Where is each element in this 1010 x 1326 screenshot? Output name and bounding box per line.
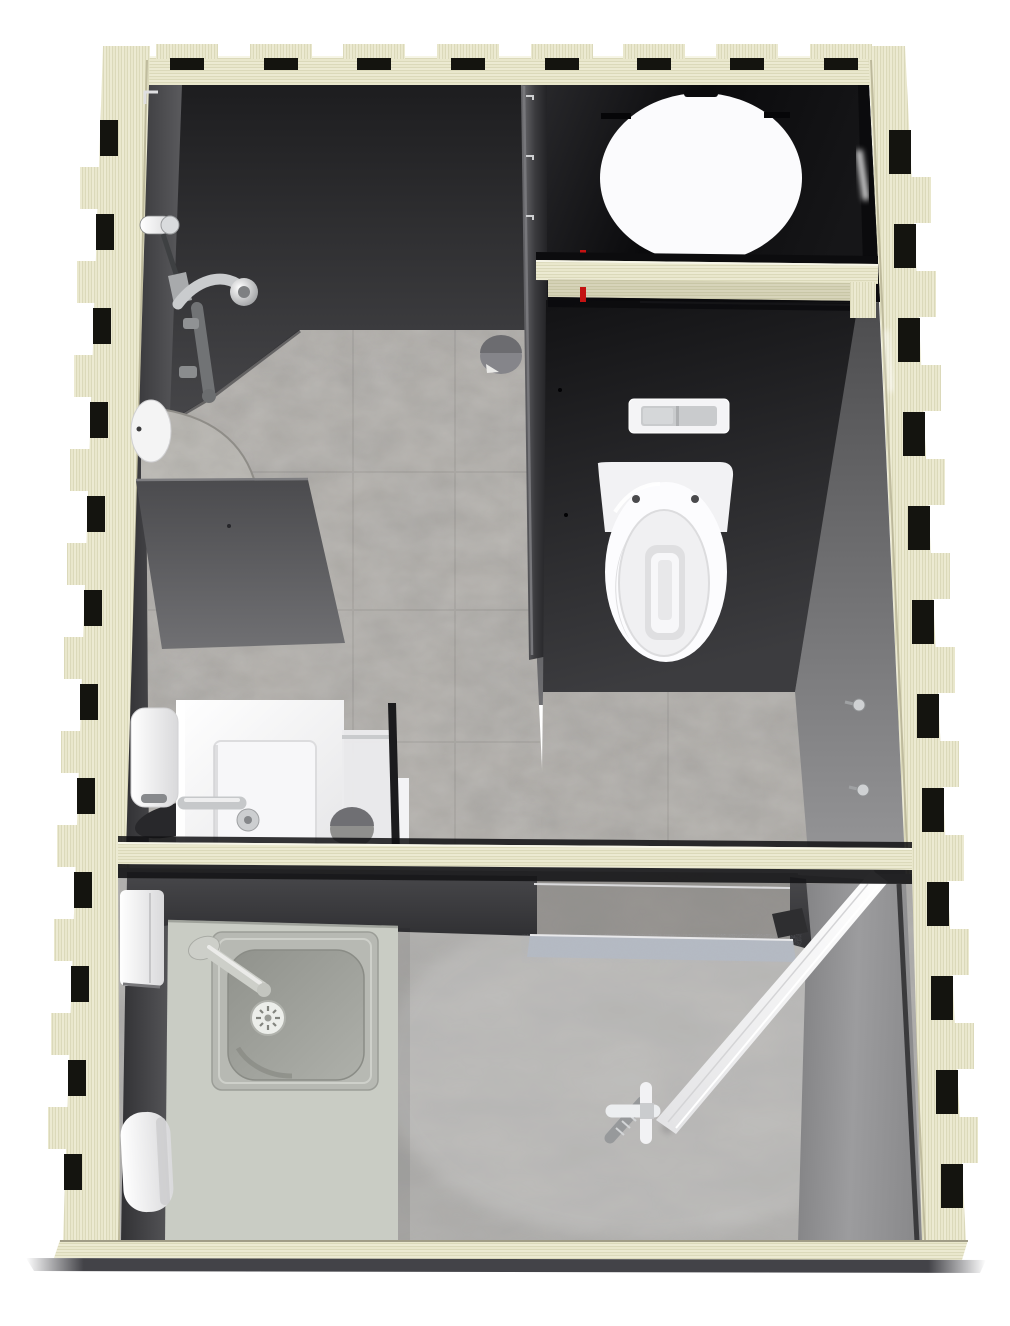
water-heater-cylinder	[119, 1111, 174, 1213]
riser-foot	[202, 389, 216, 403]
seat-hinge-left	[632, 495, 640, 503]
sink-drain	[251, 1001, 285, 1035]
water-heater-box	[120, 890, 164, 986]
toilet-room	[535, 85, 906, 884]
bathroom-module-render	[0, 0, 1010, 1326]
toilet-floor	[535, 686, 815, 861]
beam-end-post	[850, 282, 876, 318]
render-viewport	[0, 0, 1010, 1326]
dispenser-slot	[141, 794, 167, 803]
riser-clamp-upper	[183, 318, 199, 329]
red-pipe-lower	[580, 287, 586, 302]
window-bracket-right	[764, 112, 790, 118]
shower-head-center	[238, 286, 250, 298]
bottom-wall	[26, 1240, 986, 1273]
steel-sink-unit	[165, 920, 410, 1242]
seat-hinge-right	[691, 495, 699, 503]
ground-shadow	[26, 1258, 986, 1273]
bottom-wall-plank	[54, 1240, 968, 1260]
window-bracket-left	[601, 113, 631, 119]
upper-section	[126, 85, 906, 884]
soap-dispenser	[131, 708, 178, 807]
flush-plate	[629, 399, 729, 433]
top-wall-plank	[103, 56, 905, 86]
top-wall	[103, 44, 905, 86]
wall-disc	[131, 400, 171, 462]
floor-disc	[480, 335, 522, 374]
window-top-clip	[684, 90, 718, 97]
lower-section	[110, 860, 930, 1250]
shower-union-ball	[161, 216, 179, 234]
handle-hub	[640, 1103, 654, 1119]
riser-clamp-lower	[179, 366, 197, 378]
wall-disc-screw	[137, 427, 142, 432]
